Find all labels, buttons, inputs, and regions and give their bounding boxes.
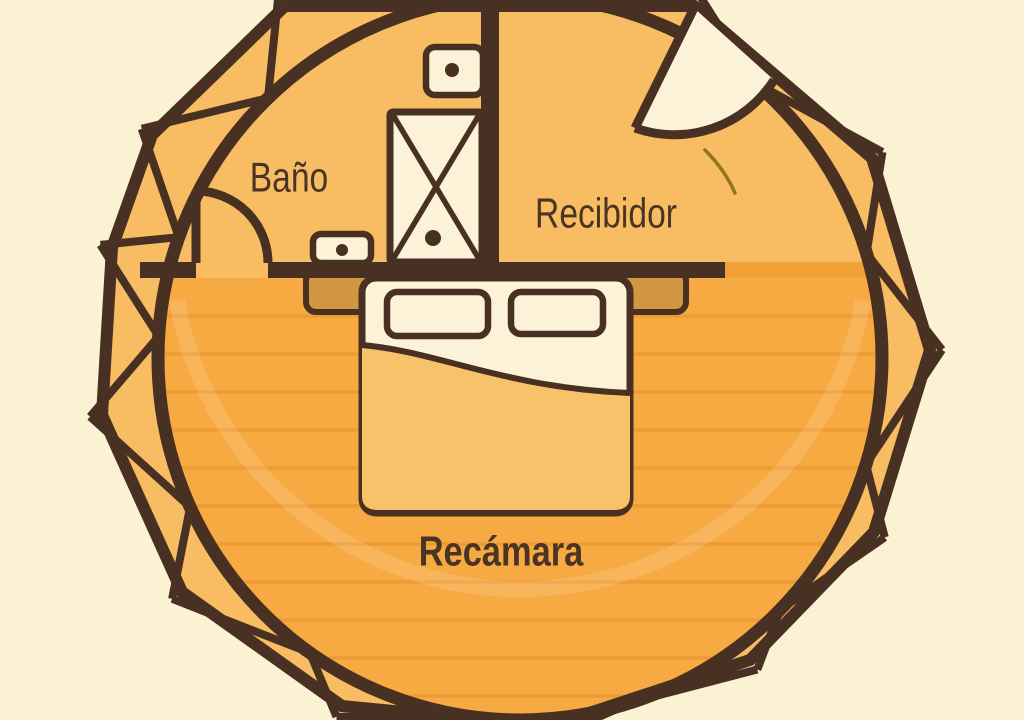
double-bed-icon	[362, 278, 630, 513]
sink-dot	[336, 244, 348, 256]
bed-pillow-right	[511, 292, 603, 334]
shower-drain-dot	[425, 230, 441, 246]
bed-pillow-left	[387, 292, 488, 336]
shower-icon	[390, 112, 482, 262]
sink-icon	[313, 234, 371, 263]
floor-plan-canvas: Baño Recibidor Recámara	[0, 0, 1024, 720]
room-label-bedroom: Recámara	[419, 528, 584, 575]
toilet-icon	[426, 47, 483, 95]
toilet-dot	[445, 63, 459, 77]
room-label-bathroom: Baño	[250, 155, 328, 201]
bathroom-door-opening	[196, 262, 268, 278]
room-label-hall: Recibidor	[535, 191, 677, 237]
dome-floor-plan: Baño Recibidor Recámara	[0, 0, 1024, 720]
